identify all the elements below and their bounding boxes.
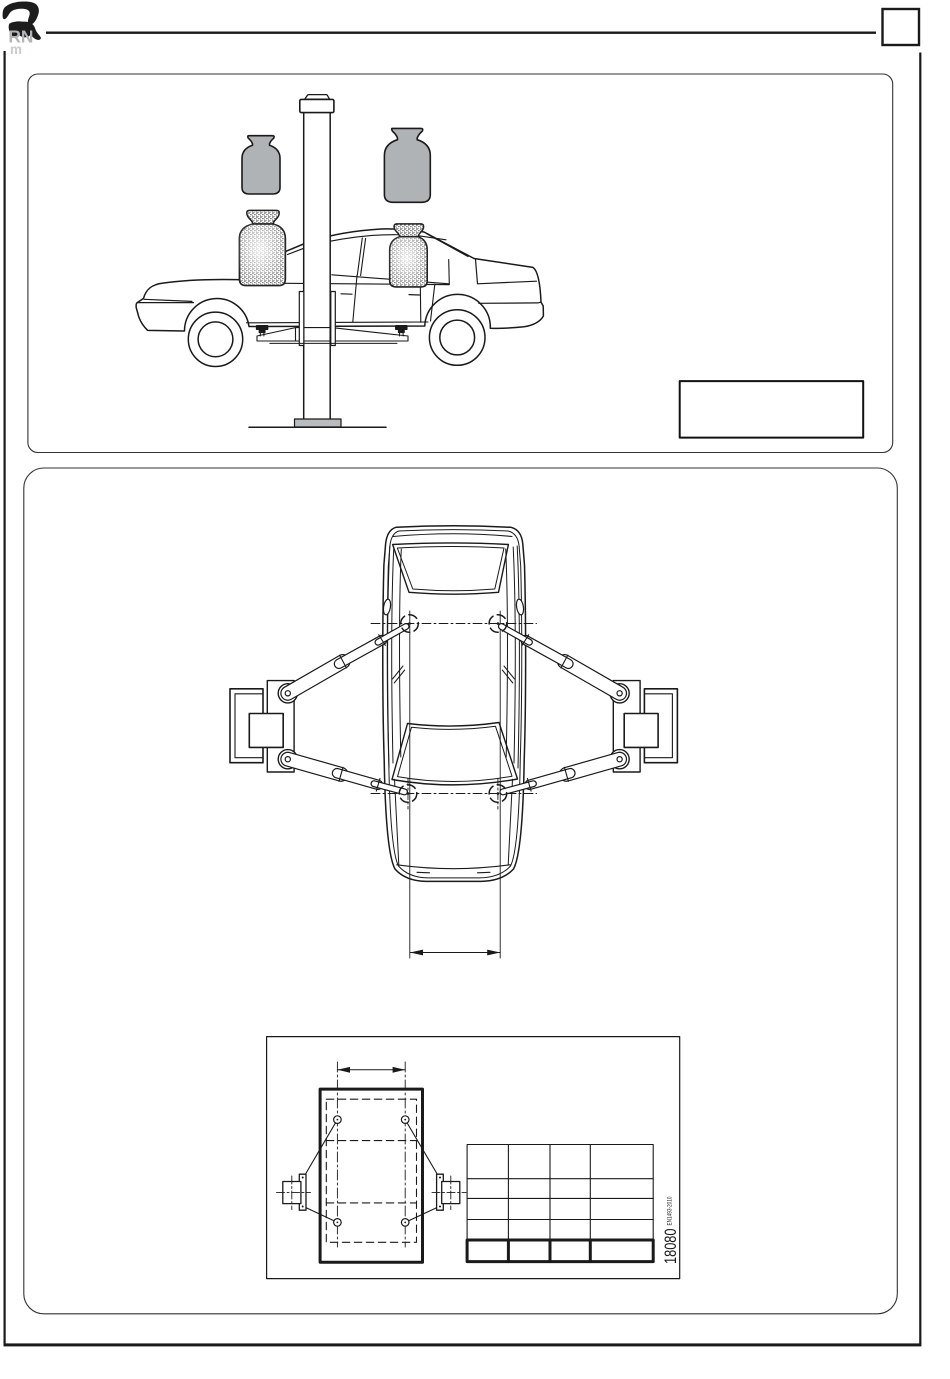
svg-text:18080: 18080 <box>662 1229 680 1265</box>
svg-text:EN1493-2010: EN1493-2010 <box>668 1196 674 1226</box>
svg-text:m: m <box>10 42 22 57</box>
